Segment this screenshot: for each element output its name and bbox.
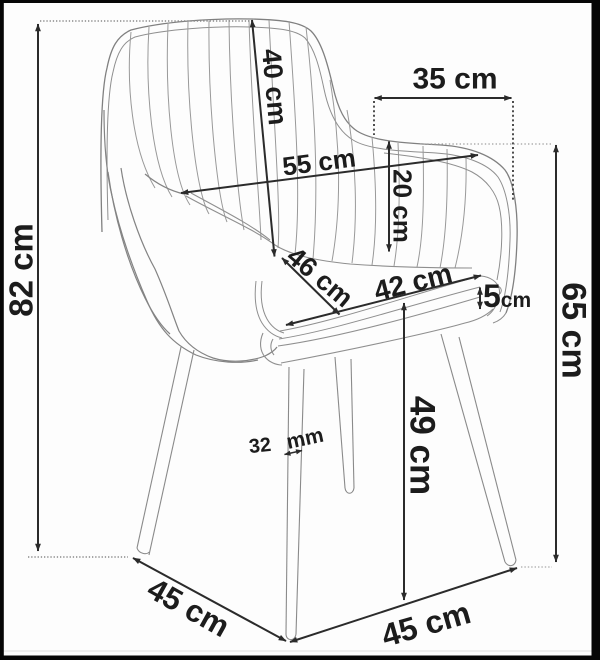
- svg-text:82 cm: 82 cm: [3, 223, 40, 317]
- svg-text:35 cm: 35 cm: [412, 63, 497, 96]
- svg-text:65 cm: 65 cm: [555, 282, 593, 378]
- svg-text:32: 32: [248, 434, 272, 458]
- svg-text:20 cm: 20 cm: [388, 169, 418, 243]
- svg-text:49 cm: 49 cm: [403, 396, 442, 495]
